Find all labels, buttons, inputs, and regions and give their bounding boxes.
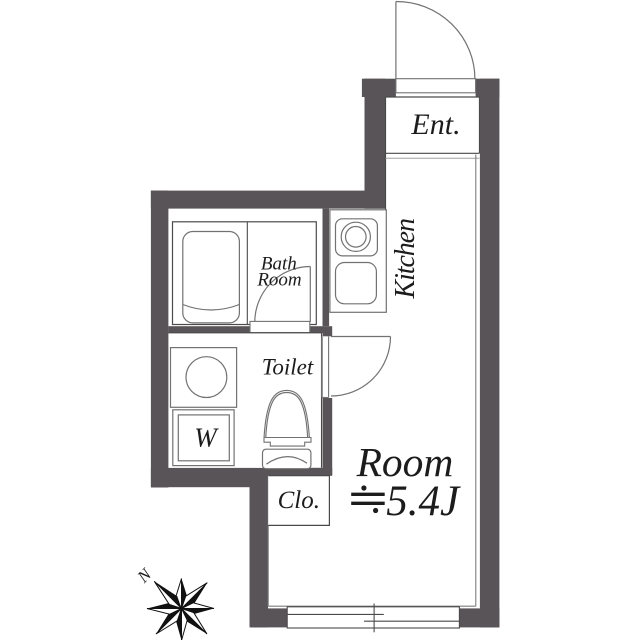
svg-text:Clo.: Clo. [278, 487, 320, 514]
svg-text:5.4J: 5.4J [386, 478, 461, 525]
svg-text:Kitchen: Kitchen [390, 219, 421, 299]
svg-text:Ent.: Ent. [410, 108, 460, 141]
svg-text:Toilet: Toilet [262, 355, 314, 380]
svg-text:Room: Room [256, 269, 301, 290]
svg-text:W: W [194, 423, 219, 453]
